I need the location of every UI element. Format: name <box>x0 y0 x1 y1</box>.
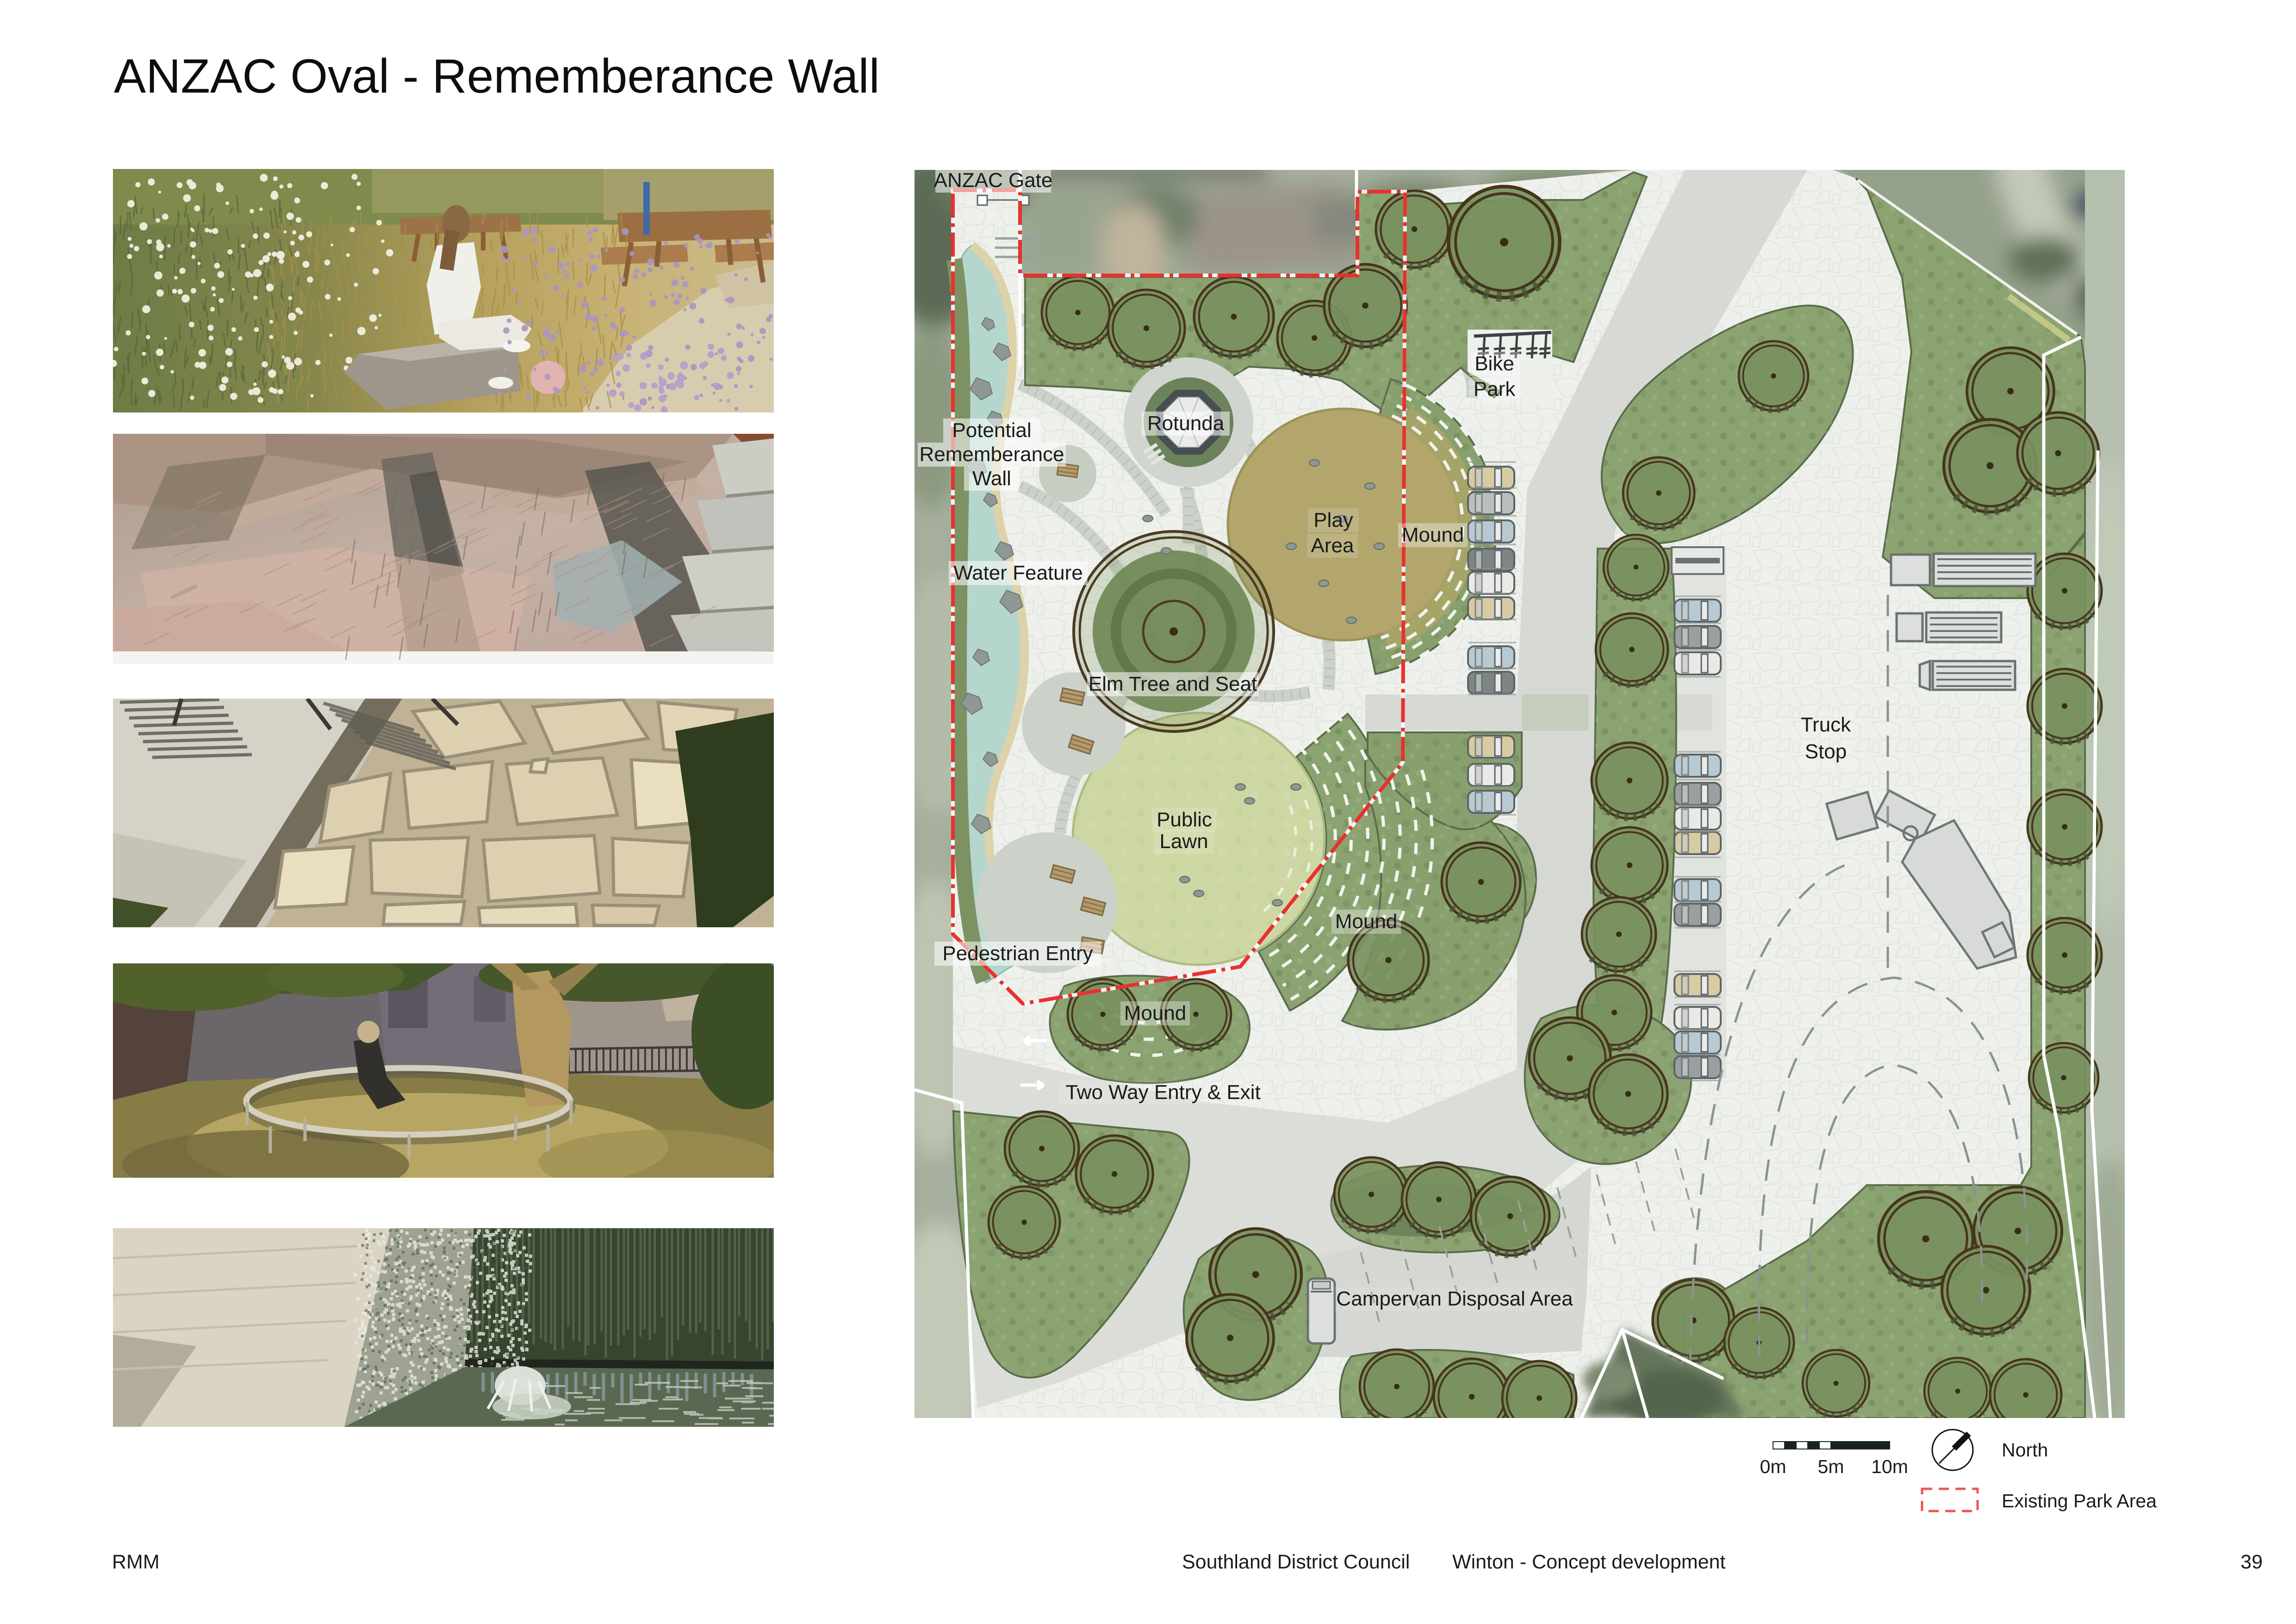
svg-text:Wall: Wall <box>972 467 1011 490</box>
svg-text:Campervan Disposal Area: Campervan Disposal Area <box>1336 1287 1573 1310</box>
svg-text:Truck: Truck <box>1801 713 1851 736</box>
svg-text:0m: 0m <box>1760 1456 1786 1477</box>
svg-text:Mound: Mound <box>1124 1002 1187 1024</box>
svg-text:Stop: Stop <box>1805 740 1847 763</box>
svg-text:Play: Play <box>1313 509 1353 531</box>
svg-text:Potential: Potential <box>952 419 1031 442</box>
svg-text:North: North <box>2002 1439 2048 1461</box>
svg-text:Mound: Mound <box>1402 524 1464 546</box>
svg-text:5m: 5m <box>1818 1456 1844 1477</box>
svg-text:Mound: Mound <box>1335 910 1398 933</box>
svg-text:ANZAC Gate: ANZAC Gate <box>934 170 1053 192</box>
svg-text:Elm Tree and Seat: Elm Tree and Seat <box>1089 673 1257 695</box>
svg-text:Two Way Entry & Exit: Two Way Entry & Exit <box>1065 1081 1260 1104</box>
svg-text:Pedestrian Entry: Pedestrian Entry <box>942 942 1093 965</box>
svg-text:Area: Area <box>1311 534 1354 557</box>
svg-text:Rotunda: Rotunda <box>1147 412 1225 435</box>
svg-text:Existing Park Area: Existing Park Area <box>2002 1490 2157 1512</box>
svg-text:10m: 10m <box>1871 1456 1908 1477</box>
svg-text:Park: Park <box>1474 378 1516 400</box>
svg-text:Water Feature: Water Feature <box>953 562 1083 584</box>
svg-text:Bike: Bike <box>1475 352 1514 375</box>
svg-text:Lawn: Lawn <box>1159 830 1208 853</box>
svg-text:Public: Public <box>1157 808 1212 831</box>
svg-text:Rememberance: Rememberance <box>919 443 1064 466</box>
